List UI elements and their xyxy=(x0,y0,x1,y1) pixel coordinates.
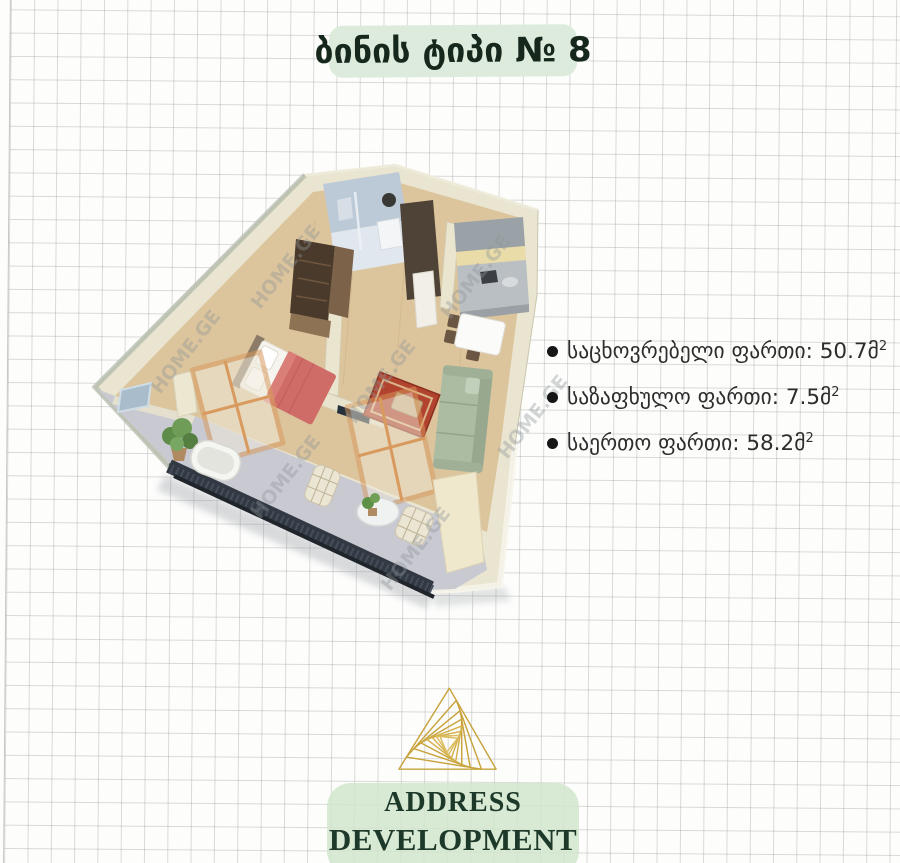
area-item-summer: საზაფხულო ფართი: 7.5მ2 xyxy=(547,383,897,412)
title-highlight: ბინის ტიპი № 8 xyxy=(329,24,577,78)
area-item-living-label: საცხოვრებელი ფართი: 50.7მ2 xyxy=(567,339,887,364)
area-item-total: საერთო ფართი: 58.2მ2 xyxy=(547,429,897,458)
bullet-dot xyxy=(547,392,558,403)
logo-triangle-icon xyxy=(391,681,504,771)
brand-line1: ADDRESS xyxy=(327,785,579,821)
bullet-dot xyxy=(547,438,558,449)
area-item-living: საცხოვრებელი ფართი: 50.7მ2 xyxy=(547,337,897,366)
bullet-dot xyxy=(547,346,558,357)
fridge xyxy=(413,271,437,328)
area-item-summer-label: საზაფხულო ფართი: 7.5მ2 xyxy=(567,385,840,410)
apartment-flyer: ბინის ტიპი № 8 xyxy=(0,0,900,863)
page-title: ბინის ტიპი № 8 xyxy=(314,30,591,72)
area-item-total-label: საერთო ფართი: 58.2მ2 xyxy=(567,431,814,456)
area-list: საცხოვრებელი ფართი: 50.7მ2 საზაფხულო ფარ… xyxy=(547,337,897,475)
brand-line2: DEVELOPMENT xyxy=(327,821,579,859)
floor-plan-3d: HOME.GE HOME.GE HOME.GE HOME.GE HOME.GE … xyxy=(55,160,565,650)
brand-name-box: ADDRESS DEVELOPMENT xyxy=(327,783,579,863)
